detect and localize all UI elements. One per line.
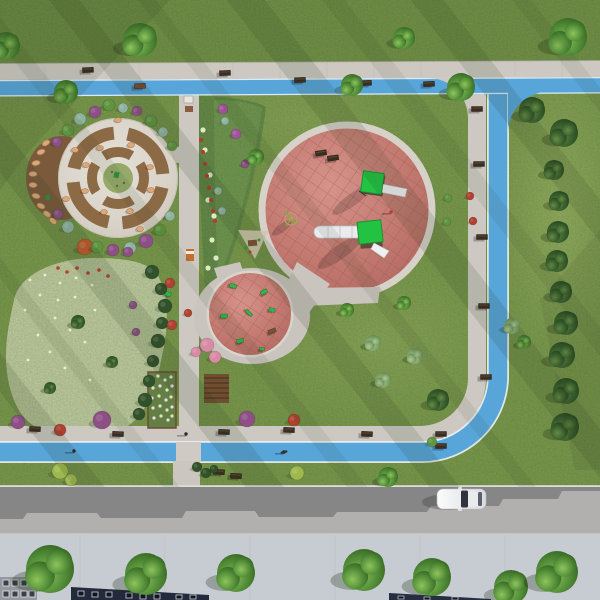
flower: [59, 282, 62, 285]
flower: [201, 150, 205, 154]
flower: [158, 384, 161, 387]
flower: [199, 138, 203, 142]
car-roof: [468, 492, 478, 507]
flower: [166, 418, 169, 421]
flower: [164, 398, 167, 401]
flower: [39, 294, 42, 297]
flower: [158, 404, 161, 407]
flower: [74, 296, 77, 299]
canopy-green-2: [357, 220, 383, 244]
flower: [57, 299, 60, 302]
flower: [75, 277, 78, 280]
flower: [27, 359, 30, 362]
flower: [205, 265, 210, 270]
park-aerial-render: Aerial top-down 3D render of a landscape…: [0, 0, 600, 600]
flower: [151, 386, 154, 389]
flower: [209, 237, 214, 242]
flower: [94, 309, 97, 312]
flower: [169, 395, 172, 398]
flower: [69, 329, 72, 332]
flower: [29, 279, 32, 282]
flower: [56, 266, 60, 270]
flower: [200, 127, 205, 132]
flower: [213, 219, 217, 223]
flower: [44, 274, 47, 277]
flower: [170, 414, 173, 417]
scene-svg: [0, 0, 600, 600]
flower: [165, 408, 168, 411]
flower: [151, 406, 154, 409]
flower: [49, 351, 52, 354]
flower: [152, 416, 155, 419]
flower: [159, 414, 162, 417]
flower: [157, 394, 160, 397]
flower: [213, 255, 218, 260]
flower: [64, 367, 67, 370]
flower: [84, 341, 87, 344]
flower: [165, 388, 168, 391]
windshield: [461, 491, 468, 508]
flower: [211, 213, 216, 218]
flower: [170, 405, 173, 408]
rear-window: [478, 492, 482, 506]
flower: [65, 270, 69, 274]
flower: [54, 317, 57, 320]
flower: [37, 334, 40, 337]
